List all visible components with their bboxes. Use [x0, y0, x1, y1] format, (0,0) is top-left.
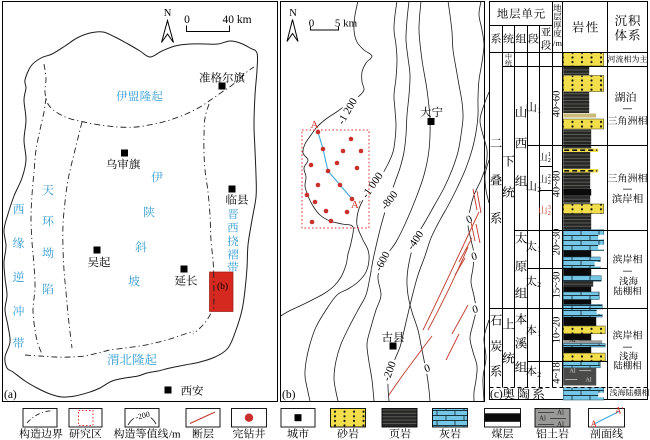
svg-text:2: 2: [537, 185, 541, 194]
svg-text:2: 2: [537, 370, 541, 379]
svg-text:(b): (b): [282, 389, 296, 401]
svg-text:0: 0: [184, 14, 190, 26]
svg-text:Al: Al: [539, 415, 546, 423]
svg-text:A: A: [311, 119, 319, 131]
svg-text:N: N: [289, 8, 297, 19]
svg-text:Al: Al: [585, 377, 592, 384]
svg-text:A′: A′: [351, 199, 361, 211]
svg-text:1: 1: [537, 245, 541, 254]
svg-text:2: 2: [548, 173, 551, 180]
svg-text:10~20: 10~20: [552, 317, 563, 344]
svg-text:1: 1: [537, 329, 541, 338]
svg-text:Al: Al: [557, 421, 564, 429]
svg-text:15~30: 15~30: [552, 272, 563, 299]
svg-text:(c): (c): [490, 389, 503, 401]
svg-text:/m: /m: [553, 38, 562, 48]
svg-text:40~60: 40~60: [552, 91, 563, 118]
svg-text:Al: Al: [569, 368, 576, 375]
svg-text:(b): (b): [217, 281, 228, 292]
svg-text:40 km: 40 km: [222, 14, 251, 26]
svg-text:/m: /m: [169, 428, 181, 440]
svg-text:40~80: 40~80: [552, 171, 563, 198]
svg-text:(a): (a): [4, 389, 17, 401]
svg-text:Al: Al: [557, 409, 564, 417]
svg-text:A: A: [591, 419, 598, 429]
svg-text:20~30: 20~30: [552, 229, 563, 256]
svg-text:A′: A′: [615, 406, 623, 416]
svg-text:N: N: [164, 8, 172, 19]
svg-text:1: 1: [548, 151, 551, 158]
svg-text:4~18: 4~18: [552, 362, 563, 383]
svg-text:0: 0: [309, 18, 315, 30]
svg-text:3: 3: [548, 204, 551, 211]
svg-text:Al: Al: [569, 337, 576, 344]
svg-text:1: 1: [537, 106, 541, 115]
svg-text:2: 2: [537, 280, 541, 289]
